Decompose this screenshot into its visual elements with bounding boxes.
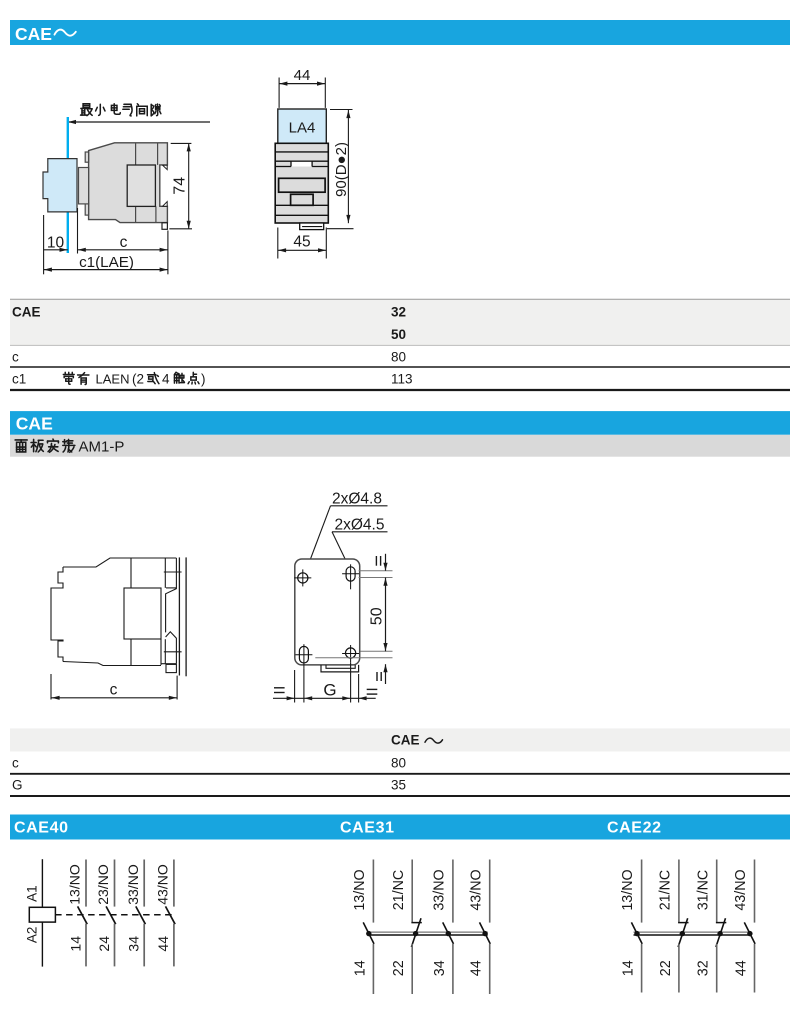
svg-text:74: 74 bbox=[172, 177, 189, 195]
svg-text:14: 14 bbox=[352, 960, 368, 976]
svg-text:23/NO: 23/NO bbox=[95, 864, 111, 905]
svg-text:22: 22 bbox=[658, 960, 674, 976]
svg-text:33/NO: 33/NO bbox=[125, 864, 141, 905]
svg-text:c: c bbox=[12, 349, 19, 364]
svg-text:13/NO: 13/NO bbox=[67, 864, 83, 905]
svg-text:90(D●2): 90(D●2) bbox=[333, 142, 350, 197]
svg-text:c1: c1 bbox=[12, 371, 26, 386]
svg-text:14: 14 bbox=[67, 936, 83, 952]
svg-text:43/NO: 43/NO bbox=[468, 869, 484, 910]
svg-text:21/NC: 21/NC bbox=[658, 870, 674, 911]
svg-text:33/NO: 33/NO bbox=[432, 869, 448, 910]
svg-text:35: 35 bbox=[391, 778, 406, 793]
svg-text:13/NO: 13/NO bbox=[620, 869, 636, 910]
svg-text:2xØ4.5: 2xØ4.5 bbox=[335, 517, 385, 534]
svg-text:LA4: LA4 bbox=[289, 120, 316, 137]
svg-text:44: 44 bbox=[734, 960, 750, 976]
svg-text:22: 22 bbox=[391, 960, 407, 976]
svg-text:CAE: CAE bbox=[12, 305, 41, 320]
svg-text:44: 44 bbox=[294, 67, 311, 84]
svg-text:AM1-P: AM1-P bbox=[79, 438, 125, 455]
svg-text:24: 24 bbox=[96, 936, 112, 952]
svg-text:44: 44 bbox=[469, 960, 485, 976]
svg-text:80: 80 bbox=[391, 756, 406, 771]
svg-text:14: 14 bbox=[621, 960, 637, 976]
svg-text:13/NO: 13/NO bbox=[352, 869, 368, 910]
svg-text:CAE: CAE bbox=[16, 413, 53, 433]
svg-text:CAE22: CAE22 bbox=[607, 820, 662, 837]
svg-text:c: c bbox=[110, 681, 118, 698]
svg-text:45: 45 bbox=[293, 234, 310, 251]
svg-text:(2: (2 bbox=[132, 371, 144, 386]
svg-text:43/NO: 43/NO bbox=[155, 864, 171, 905]
svg-text:34: 34 bbox=[432, 960, 448, 976]
svg-text:10: 10 bbox=[47, 234, 65, 251]
svg-text:c: c bbox=[12, 756, 19, 771]
svg-text:CAE31: CAE31 bbox=[340, 820, 395, 837]
svg-text:80: 80 bbox=[391, 349, 406, 364]
svg-text:32: 32 bbox=[696, 960, 712, 976]
svg-text:2xØ4.8: 2xØ4.8 bbox=[332, 491, 382, 508]
svg-text:113: 113 bbox=[391, 371, 413, 386]
svg-text:G: G bbox=[323, 681, 336, 700]
svg-text:21/NC: 21/NC bbox=[391, 870, 407, 911]
svg-text:c: c bbox=[120, 234, 128, 251]
svg-text:34: 34 bbox=[126, 936, 142, 952]
svg-text:CAE: CAE bbox=[391, 733, 420, 748]
svg-text:4: 4 bbox=[162, 371, 170, 386]
svg-text:50: 50 bbox=[368, 607, 385, 625]
svg-text:c1(LAE): c1(LAE) bbox=[79, 254, 134, 271]
svg-text:A1: A1 bbox=[25, 885, 40, 902]
svg-text:31/NC: 31/NC bbox=[695, 870, 711, 911]
svg-text:44: 44 bbox=[155, 936, 171, 952]
svg-text:32: 32 bbox=[391, 305, 406, 320]
svg-text:A2: A2 bbox=[25, 927, 40, 944]
svg-text:LAEN: LAEN bbox=[96, 371, 130, 386]
svg-text:50: 50 bbox=[391, 327, 406, 342]
svg-text:): ) bbox=[201, 371, 206, 386]
svg-text:G: G bbox=[12, 778, 23, 793]
svg-text:CAE40: CAE40 bbox=[14, 820, 69, 837]
svg-text:43/NO: 43/NO bbox=[733, 869, 749, 910]
svg-text:CAE: CAE bbox=[15, 24, 52, 44]
